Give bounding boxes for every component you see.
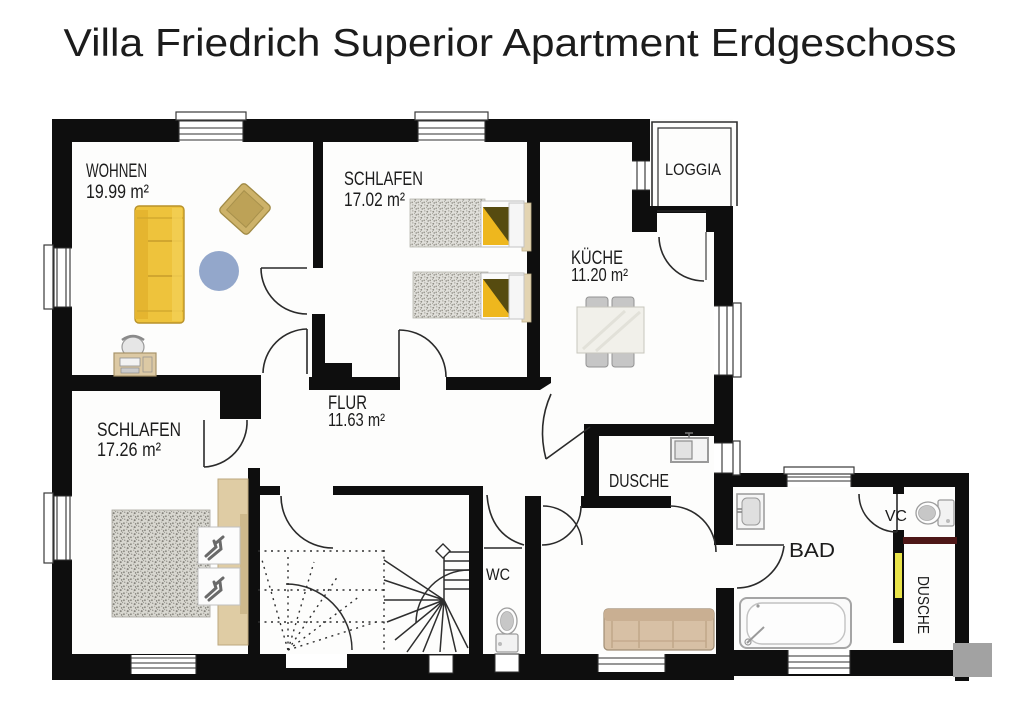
svg-text:17.02 m²: 17.02 m² [344,190,405,211]
svg-text:11.20 m²: 11.20 m² [571,265,628,285]
svg-text:DUSCHE: DUSCHE [914,576,931,634]
svg-text:SCHLAFEN: SCHLAFEN [344,169,423,190]
svg-text:Villa Friedrich Superior Apart: Villa Friedrich Superior Apartment Erdge… [64,22,957,65]
svg-text:WOHNEN: WOHNEN [86,161,147,182]
svg-text:BAD: BAD [789,540,835,562]
svg-text:17.26 m²: 17.26 m² [97,440,161,461]
svg-text:LOGGIA: LOGGIA [665,160,722,179]
svg-text:WC: WC [486,565,510,584]
svg-text:19.99 m²: 19.99 m² [86,182,149,203]
svg-text:VC: VC [885,508,907,525]
svg-text:11.63 m²: 11.63 m² [328,410,385,430]
svg-text:SCHLAFEN: SCHLAFEN [97,420,181,441]
svg-text:DUSCHE: DUSCHE [609,471,669,491]
